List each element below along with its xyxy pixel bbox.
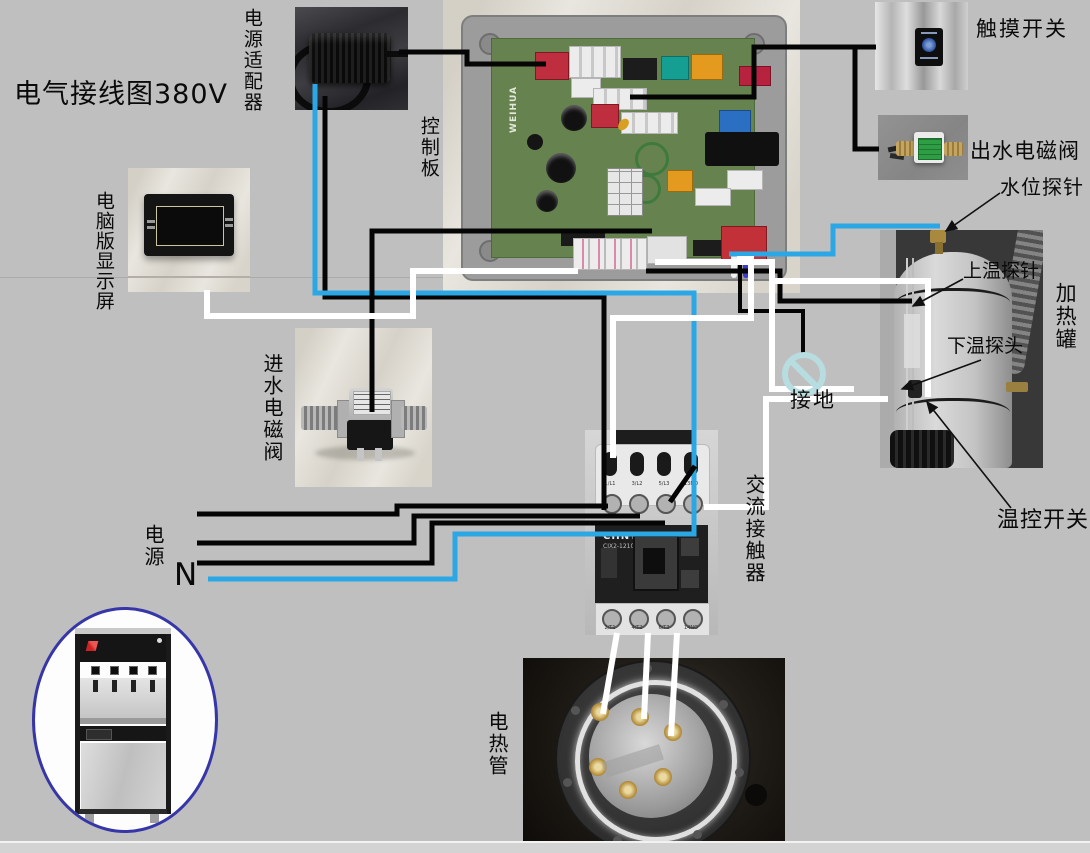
inlet-coil [347, 420, 393, 450]
control-board-photo: WEIHUA [443, 0, 800, 293]
dispenser-button [129, 666, 138, 675]
dark-hole [745, 784, 767, 806]
contactor-slot [603, 452, 617, 476]
heater-terminal-post [631, 708, 649, 726]
wiring-diagram-slide: WEIHUA [0, 0, 1090, 853]
probe-insulation [904, 314, 920, 368]
sticker-caption [921, 32, 937, 34]
water-level-probe-label: 水位探针 [1000, 176, 1084, 198]
dispenser-tap [112, 680, 117, 692]
terminal-label: 6/T3 [651, 626, 677, 632]
display-photo [128, 168, 250, 292]
heating-tank-label: 加热罐 [1053, 282, 1076, 351]
valve-brass-right [944, 142, 963, 156]
tank-pump [890, 430, 954, 468]
flange-bolt [719, 700, 728, 709]
contactor-slot [684, 452, 698, 476]
terminal-screw [683, 494, 703, 514]
capacitor [561, 105, 587, 131]
terminal-label: 5/L3 [651, 482, 677, 488]
wire-power-line-1 [197, 506, 608, 514]
lower-temp-probe-label: 下温探头 [947, 336, 1023, 357]
temp-switch-label: 温控开关 [997, 509, 1089, 533]
connector-red-2pin [591, 104, 619, 128]
adapter-cord-stub [387, 51, 408, 57]
connector-white [695, 188, 731, 206]
lower-probe-fitting [908, 380, 922, 398]
inlet-spade-terminal [357, 448, 364, 461]
inlet-spade-terminal [375, 448, 382, 461]
touch-switch-logo [922, 38, 936, 52]
capacitor [536, 190, 558, 212]
connector-crimson [739, 66, 771, 86]
connector-blue [719, 110, 751, 134]
display-label: 电脑版显示屏 [93, 191, 114, 311]
flange-bolt [643, 664, 652, 673]
relay-black [705, 132, 779, 166]
dispenser-button [148, 666, 157, 675]
neutral-label: N [174, 558, 197, 592]
connector-white-4pin [569, 46, 621, 78]
connector-white [727, 170, 763, 190]
wire-stub-white [731, 252, 737, 278]
flange-bolt [693, 830, 702, 839]
display-caption [147, 220, 155, 223]
connector-black [623, 58, 657, 80]
outlet-valve-label: 出水电磁阀 [970, 140, 1080, 163]
connector-black-2pin [693, 240, 721, 256]
touch-switch-label: 触摸开关 [976, 18, 1068, 41]
contactor-photo: 1/L1 3/L2 5/L3 13NO CHNT CJX2-1210 2/T1 … [585, 430, 718, 635]
dispenser-foot [150, 814, 159, 823]
display-caption [225, 224, 233, 227]
heater-terminal-post [654, 768, 672, 786]
page-title: 电气接线图380V [14, 80, 228, 110]
dispenser-vent-dot [157, 638, 162, 643]
inlet-pipe-left [301, 406, 341, 430]
terminal-label: 3/L2 [624, 482, 650, 488]
heater-terminal-post [619, 781, 637, 799]
power-label: 电源 [142, 524, 164, 568]
dispenser-button [91, 666, 100, 675]
dispenser-tap [131, 680, 136, 692]
contactor-slot [657, 452, 671, 476]
heater-terminal-post [664, 723, 682, 741]
inlet-valve-photo [295, 328, 432, 487]
heater-terminal-post [591, 703, 609, 721]
terminal-label: 14NO [678, 626, 704, 632]
upper-temp-probe-label: 上温探针 [963, 261, 1039, 282]
bottom-bar [0, 843, 1090, 853]
dispenser-foot [85, 814, 94, 823]
contactor-side-block [681, 570, 699, 588]
display-caption [225, 218, 233, 221]
connector-red [535, 52, 569, 80]
board-brand-text: WEIHUA [509, 86, 519, 133]
tank-side-fitting [1006, 382, 1028, 392]
dip-label-grid [607, 168, 643, 216]
terminal-screw [656, 494, 676, 514]
wire-power-line-2 [197, 516, 640, 543]
dispenser-frame-right [166, 632, 171, 814]
inlet-pipe-right [401, 406, 427, 430]
connector-white [647, 236, 687, 264]
power-adapter-photo [295, 7, 408, 110]
heater-tube-photo [523, 658, 785, 842]
terminal-screw [602, 494, 622, 514]
control-board-label: 控制板 [418, 116, 439, 179]
flange-bolt [563, 778, 572, 787]
power-adapter-label: 电源适配器 [241, 8, 262, 113]
display-screen [156, 206, 224, 246]
wire-contactor-to-tank [704, 399, 888, 507]
terminal-label: 1/L1 [597, 482, 623, 488]
capacitor [527, 134, 543, 150]
dispenser-tray [80, 718, 166, 724]
terminal-label: 4/T2 [624, 626, 650, 632]
inlet-valve-label: 进水电磁阀 [261, 353, 283, 463]
terminal-label: 2/T1 [597, 626, 623, 632]
connector-white-multiwire [573, 238, 647, 270]
adapter-brick [309, 33, 391, 83]
inlet-label [353, 391, 391, 415]
dispenser-tap [150, 680, 155, 692]
water-level-probe-arrow [946, 193, 1000, 231]
tank-top-fitting-stem [935, 242, 943, 254]
terminal-screw [629, 494, 649, 514]
touch-switch-photo [875, 2, 968, 90]
contactor-label: 交流接触器 [743, 474, 765, 584]
flange-bolt [735, 768, 744, 777]
dispenser-button [110, 666, 119, 675]
dispenser-tap [93, 680, 98, 692]
connector-teal [661, 56, 689, 80]
connector-yellow [667, 170, 693, 192]
flange-bolt [571, 706, 580, 715]
contactor-slot [630, 452, 644, 476]
terminal-label: 13NO [678, 482, 704, 488]
dispenser-display [86, 729, 112, 740]
wire-stub-blue [743, 252, 749, 278]
display-caption [147, 226, 155, 229]
heater-tube-label: 电热管 [486, 711, 508, 777]
outlet-valve-photo [878, 115, 968, 180]
valve-brass-left [896, 141, 916, 156]
connector-orange [691, 54, 723, 80]
contactor-side-block [601, 548, 617, 578]
dispenser-cabinet [81, 743, 166, 811]
dispenser-ellipse [32, 607, 218, 833]
contactor-mechanism-core [643, 548, 665, 574]
sticker-caption [920, 57, 938, 59]
display-table-edge [128, 276, 250, 278]
valve-green-board [918, 138, 942, 160]
contactor-side-block [681, 538, 699, 556]
connector-white [621, 112, 678, 134]
capacitor [546, 153, 576, 183]
ground-label: 接地 [790, 389, 836, 412]
